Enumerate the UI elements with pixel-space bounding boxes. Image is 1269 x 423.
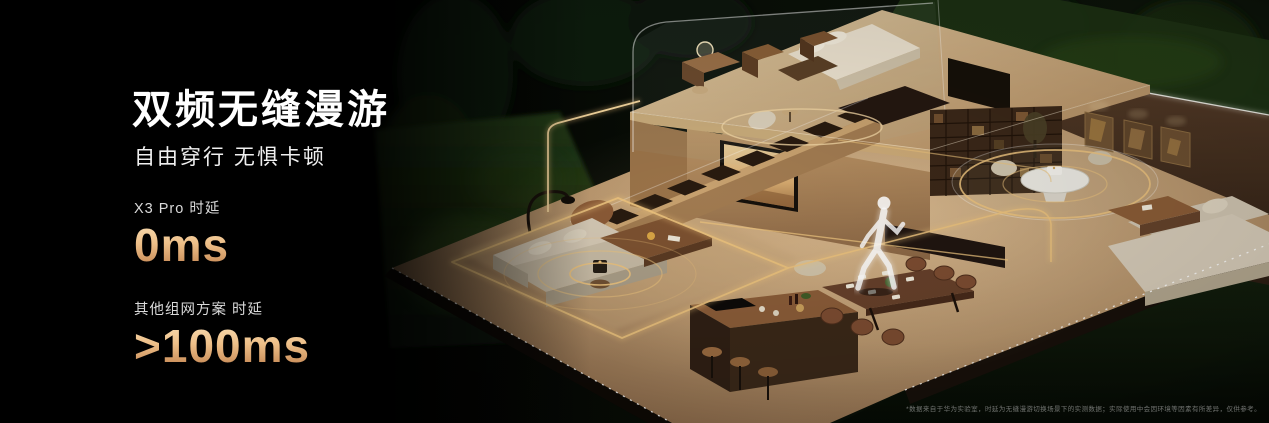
stat-other-latency: 其他组网方案 时延 >100ms — [134, 298, 390, 372]
page-subtitle: 自由穿行 无惧卡顿 — [134, 141, 390, 171]
page-title: 双频无缝漫游 — [132, 88, 390, 132]
stat-label: 其他组网方案 时延 — [134, 298, 390, 319]
stat-x3pro-latency: X3 Pro 时延 0ms — [134, 197, 390, 271]
hero-banner: 双频无缝漫游 自由穿行 无惧卡顿 X3 Pro 时延 0ms 其他组网方案 时延… — [0, 0, 1269, 423]
disclaimer-footnote: *数据来自于华为实验室，时延为无缝漫游切换场景下的实测数据；实际使用中会因环境等… — [906, 403, 1261, 413]
stat-label: X3 Pro 时延 — [134, 197, 390, 218]
marketing-copy: 双频无缝漫游 自由穿行 无惧卡顿 X3 Pro 时延 0ms 其他组网方案 时延… — [132, 88, 390, 371]
stat-value: >100ms — [134, 321, 310, 372]
stat-value: 0ms — [134, 220, 229, 271]
